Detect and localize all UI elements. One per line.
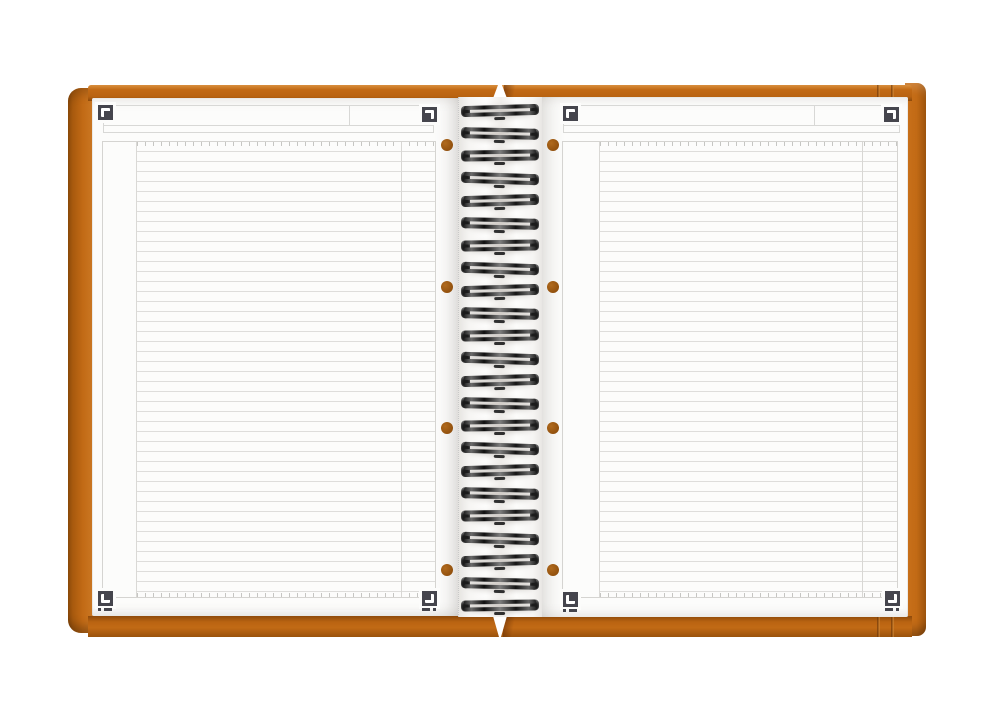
page-code-mark: [896, 608, 899, 611]
right-column-line: [401, 142, 402, 597]
page-code-mark: [422, 608, 430, 611]
ruled-lines: [137, 142, 435, 597]
punch-hole-icon: [547, 564, 559, 576]
punch-hole-icon: [547, 281, 559, 293]
back-cover-right-edge: [905, 83, 926, 636]
ruled-lines: [600, 142, 897, 597]
spine-perforation-area: [458, 97, 544, 617]
page-code-mark: [569, 609, 577, 612]
header-subrow: [564, 125, 899, 126]
scan-corner-mark-icon: [422, 107, 437, 122]
notebook-photo: [0, 0, 1000, 714]
margin-line: [136, 142, 137, 597]
right-page-ruled-area: [562, 141, 898, 598]
scan-corner-mark-icon: [884, 107, 899, 122]
cover-bottom-edge-left: [88, 616, 499, 637]
cover-fold-shadow: [503, 616, 517, 637]
front-cover-left-edge: [68, 88, 95, 633]
right-page-header-box: [563, 105, 900, 133]
left-page-header-box: [103, 105, 434, 133]
scan-corner-mark-icon: [98, 105, 113, 120]
header-divider: [814, 106, 815, 125]
header-divider: [349, 106, 350, 125]
punch-hole-icon: [547, 139, 559, 151]
page-code-mark: [104, 608, 112, 611]
right-column-line: [862, 142, 863, 597]
page-code-mark: [98, 608, 101, 611]
punch-hole-icon: [441, 422, 453, 434]
left-page-ruled-area: [102, 141, 436, 598]
scan-corner-mark-icon: [422, 591, 437, 606]
scan-corner-mark-icon: [98, 591, 113, 606]
right-page: [542, 97, 908, 617]
cover-bottom-edge-right: [501, 616, 912, 637]
punch-hole-icon: [441, 139, 453, 151]
margin-line: [599, 142, 600, 597]
punch-hole-icon: [441, 281, 453, 293]
scan-corner-mark-icon: [563, 106, 578, 121]
left-page: [92, 98, 458, 616]
page-code-mark: [563, 609, 566, 612]
header-subrow: [104, 125, 433, 126]
page-code-mark: [885, 608, 893, 611]
cover-groove: [891, 616, 894, 637]
scan-corner-mark-icon: [885, 591, 900, 606]
punch-hole-icon: [547, 422, 559, 434]
punch-hole-icon: [441, 564, 453, 576]
scan-corner-mark-icon: [563, 592, 578, 607]
page-code-mark: [433, 608, 436, 611]
cover-groove: [877, 616, 880, 637]
